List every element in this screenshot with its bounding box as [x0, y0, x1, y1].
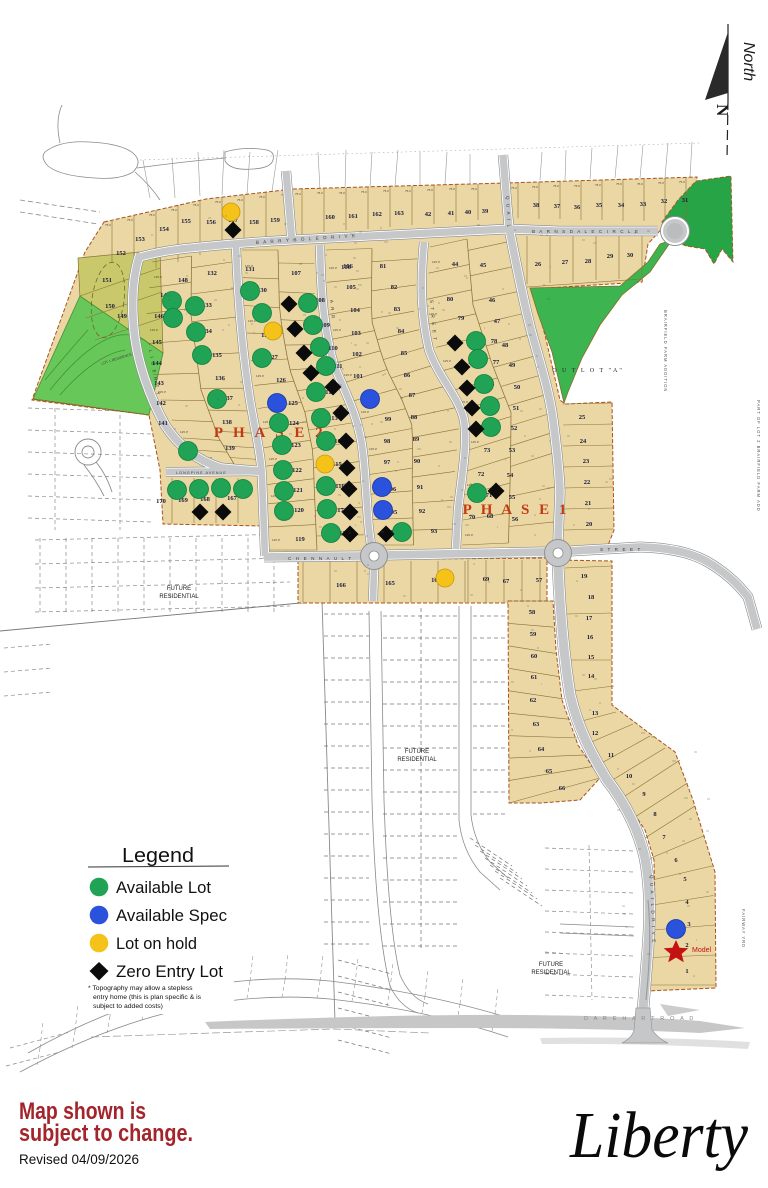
- svg-text:N: N: [713, 104, 732, 117]
- svg-text:39: 39: [482, 208, 489, 215]
- svg-text:10: 10: [626, 773, 633, 780]
- svg-text:79: 79: [458, 315, 465, 322]
- svg-text:97: 97: [384, 459, 391, 466]
- svg-text:106: 106: [343, 263, 354, 270]
- svg-text:75.0: 75.0: [383, 189, 389, 193]
- svg-text:52: 52: [511, 425, 518, 432]
- svg-text:163: 163: [394, 210, 405, 217]
- svg-text:46: 46: [489, 297, 496, 304]
- svg-text:Available Spec: Available Spec: [116, 906, 227, 925]
- svg-text:38: 38: [533, 202, 540, 209]
- svg-text:13: 13: [592, 710, 599, 717]
- svg-text:80: 80: [447, 296, 454, 303]
- svg-text:125.0': 125.0': [333, 328, 342, 332]
- svg-text:North: North: [740, 42, 757, 81]
- svg-text:75.0: 75.0: [574, 184, 580, 188]
- svg-text:93: 93: [431, 528, 438, 535]
- svg-text:28: 28: [585, 258, 592, 265]
- svg-text:170: 170: [156, 498, 166, 505]
- svg-text:88: 88: [411, 414, 418, 421]
- svg-text:FAIRWAY YRD: FAIRWAY YRD: [741, 909, 746, 948]
- svg-text:47: 47: [494, 318, 501, 325]
- svg-text:75.0: 75.0: [149, 213, 155, 217]
- svg-text:55: 55: [509, 494, 516, 501]
- svg-text:75.0: 75.0: [171, 208, 177, 212]
- svg-text:75.0: 75.0: [339, 191, 345, 195]
- svg-text:P H A S E 2: P H A S E 2: [214, 425, 326, 441]
- svg-text:72: 72: [478, 471, 485, 478]
- svg-text:101: 101: [353, 373, 363, 380]
- svg-text:85: 85: [401, 350, 408, 357]
- svg-text:143: 143: [154, 380, 165, 387]
- svg-text:75.0: 75.0: [259, 195, 265, 199]
- svg-text:LONGPINE AVENUE: LONGPINE AVENUE: [176, 471, 227, 475]
- svg-text:73: 73: [484, 447, 491, 454]
- svg-text:64: 64: [538, 746, 545, 753]
- svg-text:125.0': 125.0': [256, 374, 265, 378]
- svg-text:162: 162: [372, 211, 382, 218]
- svg-text:17: 17: [586, 615, 593, 622]
- svg-text:75.0: 75.0: [553, 184, 559, 188]
- svg-text:152: 152: [116, 250, 126, 257]
- svg-text:161: 161: [348, 213, 358, 220]
- svg-text:2: 2: [685, 942, 688, 949]
- svg-text:146: 146: [154, 313, 165, 320]
- svg-text:31: 31: [682, 197, 689, 204]
- svg-text:subject to change.: subject to change.: [19, 1120, 193, 1147]
- svg-text:102: 102: [352, 351, 362, 358]
- svg-text:15: 15: [588, 654, 595, 661]
- svg-text:75.0: 75.0: [471, 187, 477, 191]
- svg-text:C H E N N A U L T: C H E N N A U L T: [288, 556, 353, 561]
- svg-text:41: 41: [448, 210, 455, 217]
- svg-text:120: 120: [294, 507, 304, 514]
- svg-text:51: 51: [513, 405, 520, 412]
- svg-text:75.0: 75.0: [105, 223, 111, 227]
- svg-text:75.0: 75.0: [193, 203, 199, 207]
- svg-text:125.0': 125.0': [432, 260, 441, 264]
- svg-text:75.0: 75.0: [679, 180, 685, 184]
- svg-text:FUTURE: FUTURE: [539, 962, 563, 968]
- svg-text:150: 150: [105, 303, 115, 310]
- svg-text:40: 40: [465, 209, 472, 216]
- svg-text:125.0': 125.0': [329, 266, 338, 270]
- svg-text:75.0: 75.0: [405, 189, 411, 193]
- svg-text:154: 154: [159, 226, 170, 233]
- svg-text:20: 20: [586, 521, 593, 528]
- svg-text:Liberty: Liberty: [569, 1099, 749, 1172]
- svg-text:FUTURE: FUTURE: [167, 586, 191, 592]
- svg-text:86: 86: [404, 372, 411, 379]
- svg-text:155: 155: [181, 218, 192, 225]
- svg-text:63: 63: [533, 721, 540, 728]
- svg-text:22: 22: [584, 479, 591, 486]
- svg-text:14: 14: [588, 673, 595, 680]
- svg-text:149: 149: [117, 313, 128, 320]
- svg-text:141: 141: [158, 420, 168, 427]
- svg-text:D A R E H A R T R O A D: D A R E H A R T R O A D: [584, 1016, 696, 1022]
- svg-text:Available Lot: Available Lot: [116, 878, 211, 897]
- svg-text:61: 61: [531, 674, 538, 681]
- svg-text:59: 59: [530, 631, 537, 638]
- svg-text:151: 151: [102, 277, 112, 284]
- svg-text:* Topography may allow a stepl: * Topography may allow a stepless: [88, 985, 193, 992]
- svg-text:159: 159: [270, 217, 281, 224]
- svg-text:65: 65: [546, 768, 553, 775]
- svg-text:Lot on hold: Lot on hold: [116, 934, 197, 953]
- svg-text:83: 83: [394, 306, 401, 313]
- svg-text:103: 103: [351, 330, 362, 337]
- svg-text:91: 91: [417, 484, 424, 491]
- svg-text:153: 153: [135, 236, 146, 243]
- svg-text:66: 66: [559, 785, 566, 792]
- svg-text:Legend: Legend: [122, 845, 194, 867]
- svg-text:FUTURE: FUTURE: [405, 749, 429, 755]
- svg-text:82: 82: [391, 284, 398, 291]
- svg-text:54: 54: [507, 472, 514, 479]
- svg-text:107: 107: [291, 270, 302, 277]
- svg-text:44: 44: [452, 261, 459, 268]
- svg-text:33: 33: [640, 201, 647, 208]
- svg-text:21: 21: [585, 500, 592, 507]
- svg-text:P H A S E 1: P H A S E 1: [463, 502, 570, 518]
- svg-text:42: 42: [425, 211, 432, 218]
- svg-text:16: 16: [587, 634, 594, 641]
- svg-text:60: 60: [531, 653, 538, 660]
- svg-text:32: 32: [661, 198, 668, 205]
- svg-text:126: 126: [276, 377, 287, 384]
- svg-text:30: 30: [627, 252, 634, 259]
- svg-text:144: 144: [152, 360, 163, 367]
- svg-text:99: 99: [385, 416, 392, 423]
- svg-text:158: 158: [249, 219, 260, 226]
- svg-text:23: 23: [583, 458, 590, 465]
- svg-text:75.0: 75.0: [361, 190, 367, 194]
- svg-text:26: 26: [535, 261, 542, 268]
- svg-text:37: 37: [554, 203, 561, 210]
- svg-text:160: 160: [325, 214, 335, 221]
- svg-text:Revised 04/09/2026: Revised 04/09/2026: [19, 1151, 139, 1167]
- svg-text:11: 11: [608, 752, 614, 759]
- svg-text:125.0': 125.0': [369, 447, 378, 451]
- svg-text:24: 24: [580, 438, 587, 445]
- svg-text:35: 35: [596, 202, 603, 209]
- svg-text:125.0': 125.0': [344, 373, 353, 377]
- svg-text:125.0': 125.0': [361, 410, 370, 414]
- svg-text:78: 78: [491, 338, 498, 345]
- svg-text:25: 25: [579, 414, 586, 421]
- svg-text:142: 142: [156, 400, 166, 407]
- svg-text:125.0': 125.0': [272, 538, 281, 542]
- svg-text:PART OF LOT 2 BRAIRFIELD: PART OF LOT 2 BRAIRFIELD FARM ADD: [756, 400, 761, 512]
- svg-text:45: 45: [480, 262, 487, 269]
- svg-text:29: 29: [607, 253, 614, 260]
- svg-text:125.0': 125.0': [471, 440, 480, 444]
- svg-text:subject to added costs): subject to added costs): [93, 1003, 163, 1010]
- svg-text:75.0: 75.0: [215, 200, 221, 204]
- svg-text:RESIDENTIAL: RESIDENTIAL: [397, 757, 437, 763]
- svg-text:98: 98: [384, 438, 391, 445]
- svg-text:75.0: 75.0: [237, 198, 243, 202]
- svg-text:104: 104: [350, 307, 361, 314]
- svg-text:O U T L O T "A": O U T L O T "A": [552, 368, 624, 374]
- svg-text:50: 50: [514, 384, 521, 391]
- svg-text:89: 89: [413, 436, 420, 443]
- svg-text:49: 49: [509, 362, 516, 369]
- svg-text:125.0': 125.0': [465, 533, 474, 537]
- svg-text:123: 123: [291, 442, 302, 449]
- svg-text:156: 156: [206, 219, 217, 226]
- svg-text:139: 139: [225, 445, 236, 452]
- svg-text:67: 67: [503, 578, 510, 585]
- svg-text:75.0: 75.0: [449, 187, 455, 191]
- svg-text:62: 62: [530, 697, 537, 704]
- svg-text:36: 36: [574, 204, 581, 211]
- svg-text:Model: Model: [692, 947, 712, 954]
- svg-text:84: 84: [398, 328, 405, 335]
- svg-text:105: 105: [346, 284, 357, 291]
- svg-text:87: 87: [409, 392, 416, 399]
- svg-text:entry home (this is plan speci: entry home (this is plan specific & is: [93, 994, 202, 1001]
- svg-text:125.0': 125.0': [154, 275, 163, 279]
- svg-text:18: 18: [588, 594, 595, 601]
- svg-text:90: 90: [414, 458, 421, 465]
- svg-text:125.0': 125.0': [269, 457, 278, 461]
- svg-text:92: 92: [419, 508, 426, 515]
- svg-text:S T R E E T: S T R E E T: [600, 547, 642, 552]
- svg-text:BRAIRFIELD FARM ADDITION: BRAIRFIELD FARM ADDITION: [663, 310, 668, 392]
- svg-text:132: 132: [207, 270, 217, 277]
- svg-text:75.0: 75.0: [127, 218, 133, 222]
- svg-text:125.0': 125.0': [150, 328, 159, 332]
- svg-text:48: 48: [502, 342, 509, 349]
- svg-text:131: 131: [245, 266, 255, 273]
- svg-text:34: 34: [618, 202, 625, 209]
- svg-text:58: 58: [529, 609, 536, 616]
- svg-text:1: 1: [685, 968, 688, 975]
- svg-text:166: 166: [336, 582, 347, 589]
- svg-text:75.0: 75.0: [511, 186, 517, 190]
- svg-text:119: 119: [295, 536, 305, 543]
- svg-text:27: 27: [562, 259, 569, 266]
- svg-text:75.0: 75.0: [595, 183, 601, 187]
- svg-text:75.0: 75.0: [295, 192, 301, 196]
- svg-text:75.0: 75.0: [637, 182, 643, 186]
- svg-text:148: 148: [178, 277, 189, 284]
- svg-text:Zero Entry Lot: Zero Entry Lot: [116, 962, 223, 981]
- svg-text:53: 53: [509, 447, 516, 454]
- svg-text:75.0: 75.0: [658, 181, 664, 185]
- svg-text:165: 165: [385, 580, 396, 587]
- svg-text:122: 122: [292, 467, 302, 474]
- svg-text:75.0: 75.0: [317, 191, 323, 195]
- svg-text:125.0': 125.0': [180, 430, 189, 434]
- svg-text:136: 136: [215, 375, 226, 382]
- svg-text:81: 81: [380, 263, 387, 270]
- svg-text:77: 77: [493, 359, 500, 366]
- svg-text:125: 125: [288, 400, 299, 407]
- svg-text:135: 135: [212, 352, 223, 359]
- svg-text:75.0: 75.0: [427, 188, 433, 192]
- svg-text:75.0: 75.0: [616, 182, 622, 186]
- svg-text:19: 19: [581, 573, 588, 580]
- svg-text:57: 57: [536, 577, 543, 584]
- svg-text:B A R N S D A L E C I R C L: B A R N S D A L E C I R C L E: [532, 229, 640, 234]
- svg-text:121: 121: [293, 487, 303, 494]
- svg-text:145: 145: [152, 339, 163, 346]
- svg-text:RESIDENTIAL: RESIDENTIAL: [531, 970, 571, 976]
- svg-text:RESIDENTIAL: RESIDENTIAL: [159, 594, 199, 600]
- svg-text:12: 12: [592, 730, 599, 737]
- svg-text:125.0': 125.0': [443, 359, 452, 363]
- svg-text:75.0: 75.0: [532, 185, 538, 189]
